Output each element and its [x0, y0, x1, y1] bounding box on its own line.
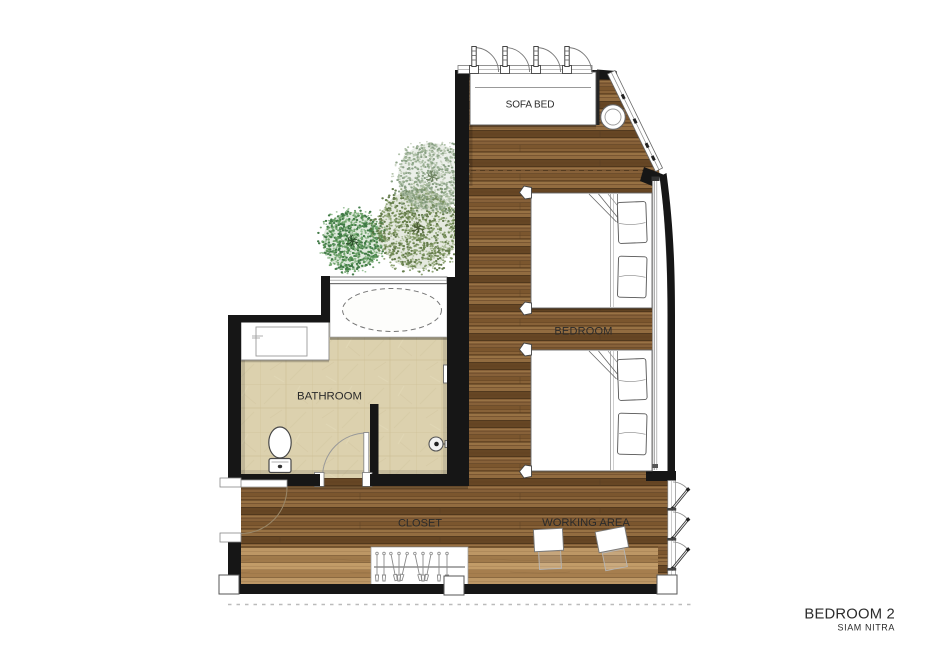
- svg-text:BEDROOM: BEDROOM: [554, 326, 612, 338]
- svg-text:BEDROOM 2: BEDROOM 2: [804, 607, 895, 623]
- svg-text:CLOSET: CLOSET: [398, 518, 442, 530]
- svg-text:BATHROOM: BATHROOM: [297, 391, 362, 403]
- svg-text:WORKING AREA: WORKING AREA: [542, 517, 630, 529]
- svg-text:SIAM NITRA: SIAM NITRA: [837, 623, 895, 633]
- svg-text:SOFA BED: SOFA BED: [506, 100, 555, 111]
